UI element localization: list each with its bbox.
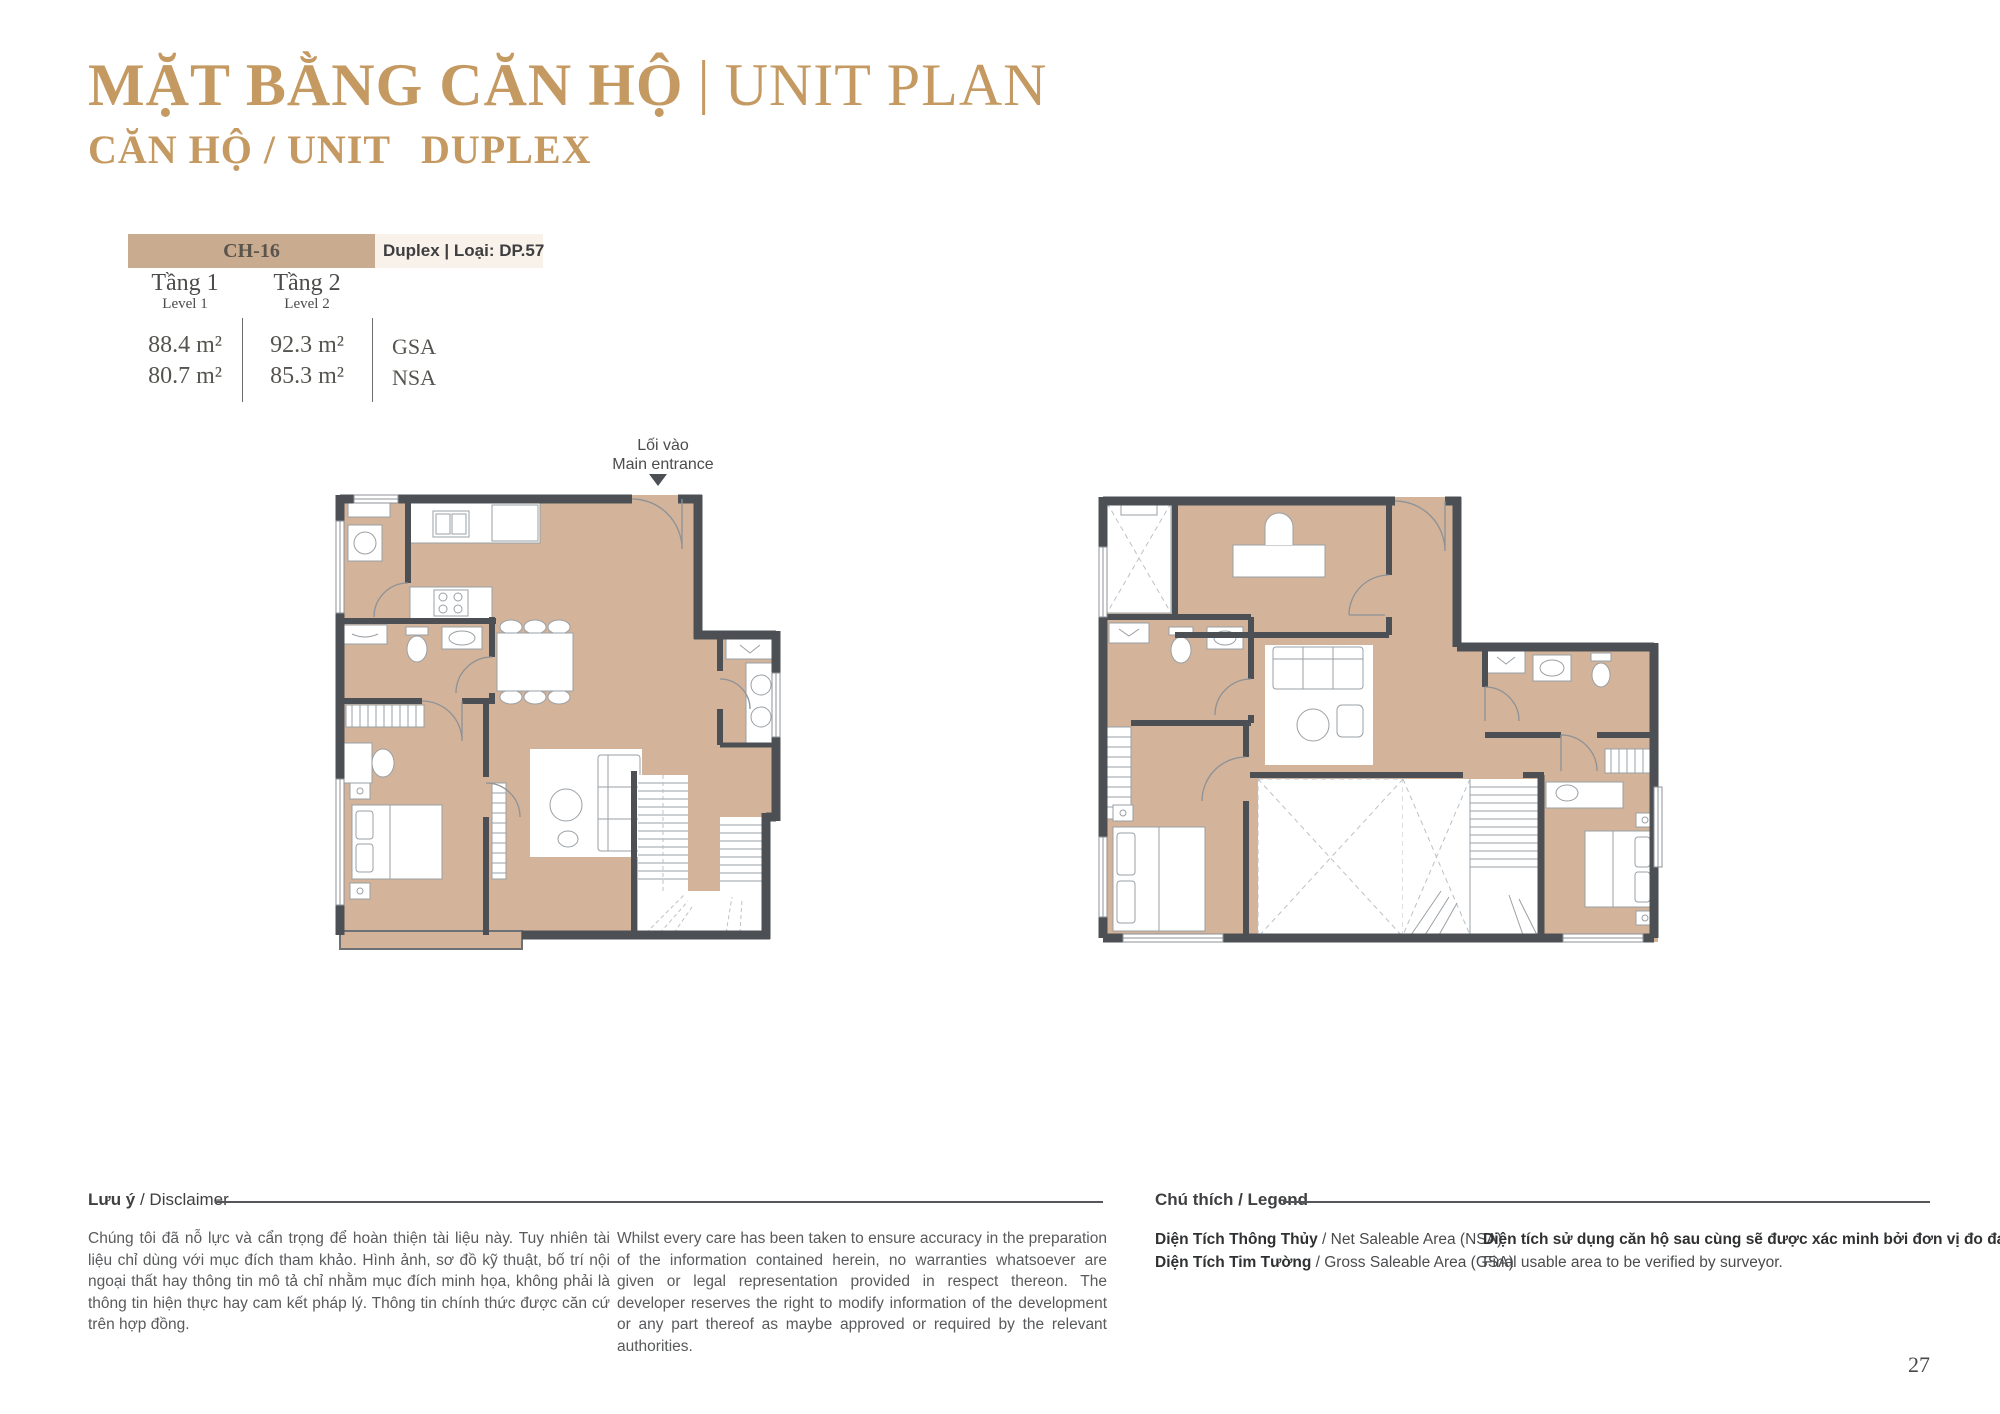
disclaimer-heading-vi: Lưu ý: [88, 1190, 135, 1209]
bathtub-icon: [343, 625, 387, 644]
legend-note-vi: Diện tích sử dụng căn hộ sau cùng sẽ đượ…: [1483, 1228, 2000, 1251]
hall-wardrobe-icon: [492, 783, 506, 879]
legend-item-gsa: Diện Tích Tim Tường / Gross Saleable Are…: [1155, 1251, 1514, 1274]
floor-plan-level-2-svg: [1093, 487, 1668, 957]
page-title-en: UNIT PLAN: [725, 52, 1048, 118]
stool-icon: [558, 831, 578, 847]
toilet-icon: [1591, 653, 1611, 661]
dining-table-icon: [497, 620, 573, 704]
shelf-icon: [1109, 623, 1149, 643]
page-title: MẶT BẰNG CĂN HỘ|UNIT PLAN: [88, 54, 1047, 117]
disclaimer-text-vi: Chúng tôi đã nỗ lực và cẩn trọng để hoàn…: [88, 1228, 610, 1336]
page-number: 27: [1908, 1352, 1958, 1378]
nsa-level-2: 85.3 m²: [242, 361, 372, 391]
wardrobe-icon: [346, 705, 424, 727]
coffee-table-icon: [1297, 709, 1329, 741]
void-icon: [1258, 779, 1403, 937]
entrance-arrow-icon: [649, 474, 667, 486]
title-separator: |: [684, 49, 725, 115]
shower-niche-icon: [726, 639, 776, 659]
level-2-name-en: Level 2: [242, 296, 372, 312]
level-2-name-vi: Tầng 2: [242, 270, 372, 296]
legend-gsa-vi: Diện Tích Tim Tường: [1155, 1254, 1311, 1271]
toilet-icon: [406, 627, 428, 635]
wardrobe-icon: [1605, 749, 1654, 773]
legend-items: Diện Tích Thông Thủy / Net Saleable Area…: [1155, 1228, 1514, 1274]
nsa-label: NSA: [392, 363, 472, 393]
page-subtitle: CĂN HỘ / UNITDUPLEX: [88, 126, 591, 173]
sink-icon: [1533, 655, 1571, 681]
gsa-level-2: 92.3 m²: [242, 330, 372, 360]
sofa-icon: [1273, 647, 1363, 689]
closet-icon: [1107, 503, 1171, 613]
legend-note: Diện tích sử dụng căn hộ sau cùng sẽ đượ…: [1483, 1228, 2000, 1274]
legend-note-en: Final usable area to be verified by surv…: [1483, 1251, 2000, 1274]
entrance-label-en: Main entrance: [593, 455, 733, 474]
disclaimer-rule: [215, 1201, 1103, 1203]
shower-niche-icon: [1487, 651, 1525, 673]
nsa-level-1: 80.7 m²: [128, 361, 242, 391]
floor-plan-level-1: [330, 487, 790, 957]
gsa-level-1: 88.4 m²: [128, 330, 242, 360]
page-title-vi: MẶT BẰNG CĂN HỘ: [88, 52, 684, 118]
floor-plan-level-1-svg: [330, 487, 790, 957]
subtitle-value: DUPLEX: [421, 127, 591, 172]
entrance-label: Lối vào Main entrance: [593, 436, 733, 474]
legend-heading: Chú thích / Legend: [1155, 1190, 1308, 1210]
legend-nsa-en: / Net Saleable Area (NSA): [1318, 1231, 1502, 1248]
stairs-icon: [1403, 779, 1541, 937]
unit-code-badge: CH-16: [128, 234, 375, 268]
level-1-name-en: Level 1: [128, 296, 242, 312]
disclaimer-heading-en: / Disclaimer: [135, 1190, 229, 1209]
sink-icon: [442, 627, 482, 649]
armchair-icon: [1337, 705, 1363, 737]
level-2-header: Tầng 2 Level 2: [242, 270, 372, 312]
disclaimer-heading: Lưu ý / Disclaimer: [88, 1190, 229, 1210]
legend-item-nsa: Diện Tích Thông Thủy / Net Saleable Area…: [1155, 1228, 1514, 1251]
subtitle-label: CĂN HỘ / UNIT: [88, 127, 391, 172]
dressing-table-icon: [1546, 782, 1623, 808]
disclaimer-text-en: Whilst every care has been taken to ensu…: [617, 1228, 1107, 1357]
coffee-table-icon: [550, 789, 582, 821]
table-divider: [242, 318, 243, 402]
unit-type-label: Duplex | Loại: DP.57: [375, 234, 543, 268]
legend-nsa-vi: Diện Tích Thông Thủy: [1155, 1231, 1318, 1248]
gsa-label: GSA: [392, 332, 472, 362]
balcony: [340, 931, 522, 949]
legend-rule: [1283, 1201, 1930, 1203]
level-1-name-vi: Tầng 1: [128, 270, 242, 296]
floor-plan-level-2: [1093, 487, 1668, 957]
entrance-label-vi: Lối vào: [593, 436, 733, 455]
table-divider: [372, 318, 373, 402]
level-1-header: Tầng 1 Level 1: [128, 270, 242, 312]
brochure-page: MẶT BẰNG CĂN HỘ|UNIT PLAN CĂN HỘ / UNITD…: [0, 0, 2000, 1414]
